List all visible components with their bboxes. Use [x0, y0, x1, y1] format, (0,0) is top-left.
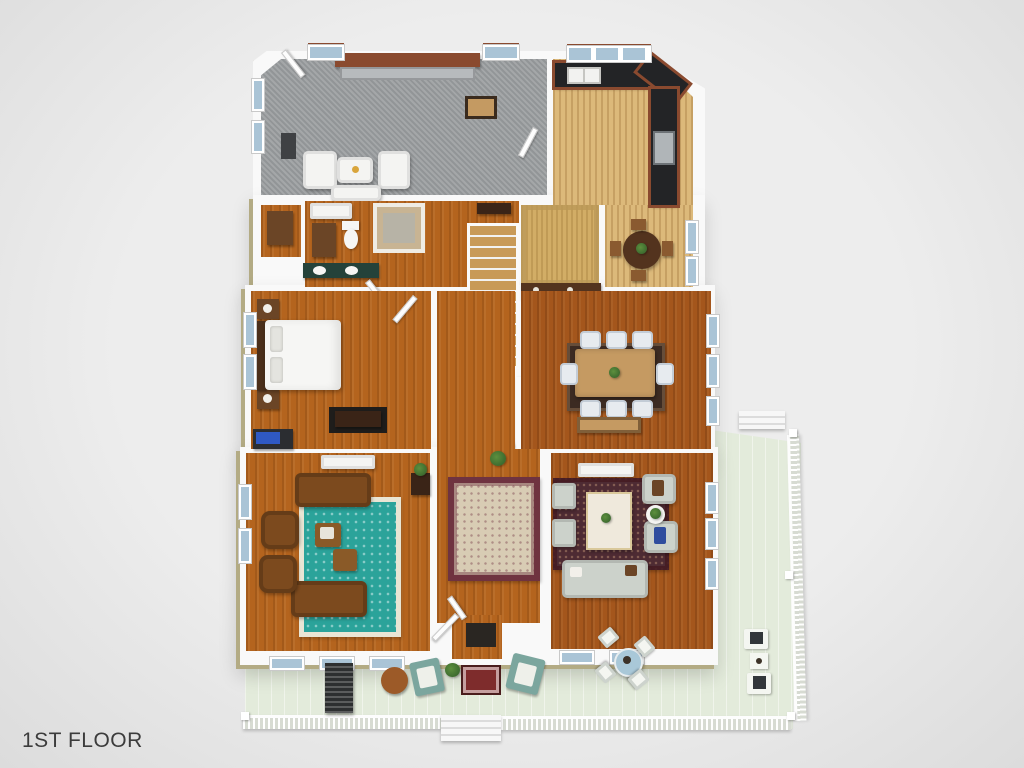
dining-chair [632, 400, 653, 418]
window [707, 397, 719, 425]
dining-chair [632, 331, 653, 349]
living-sideboard [411, 473, 430, 495]
deck-steps-top [739, 411, 785, 429]
window [308, 45, 344, 60]
floor-plan [215, 15, 815, 755]
dining-chair [606, 331, 627, 349]
porch-railing-left [243, 715, 441, 729]
porch-railing-right [501, 716, 791, 730]
sunroom-doormat [281, 133, 296, 159]
dining-chair [580, 400, 601, 418]
window [706, 559, 718, 589]
nook-chair [631, 219, 646, 230]
attic-hatch [465, 96, 497, 119]
window [707, 355, 719, 387]
dining-console [577, 417, 641, 433]
family-ottoman [552, 519, 576, 547]
floorplan-screenshot: { "title": { "floor_label": "1ST FLOOR" … [0, 0, 1024, 768]
window [686, 221, 698, 253]
living-armchair [261, 511, 299, 549]
entry-doormat [466, 623, 496, 647]
window [686, 257, 698, 285]
side-table-plant [650, 508, 661, 519]
living-console [321, 455, 375, 469]
window [239, 529, 251, 563]
porch-plant [445, 663, 460, 677]
nook-chair [631, 270, 646, 281]
bedroom-desk-top [256, 432, 280, 444]
nook-chair [610, 241, 621, 256]
shower-pan [383, 213, 415, 243]
family-ottoman [552, 483, 576, 509]
window [483, 45, 519, 60]
living-ottoman [333, 549, 357, 571]
floor-label: 1ST FLOOR [22, 729, 143, 753]
toilet-bowl [344, 229, 358, 249]
dining-chair [606, 400, 627, 418]
window [244, 313, 256, 347]
nightstand-lamp [263, 304, 272, 313]
window [567, 46, 651, 62]
sunroom-armchair [303, 151, 337, 189]
closet-cabinet [267, 211, 293, 245]
bedroom-media-console [335, 411, 381, 427]
coffee-table-plant [601, 513, 611, 523]
window [270, 657, 304, 670]
pantry-floor [521, 205, 599, 285]
railing-post [785, 571, 793, 579]
window [252, 121, 264, 153]
sunroom-loveseat [331, 185, 381, 201]
railing-post [787, 712, 795, 720]
bed-pillow [270, 357, 283, 383]
dining-chair [560, 363, 578, 385]
nightstand-lamp [263, 394, 272, 403]
dining-centerpiece [609, 367, 620, 378]
bed-pillow [270, 326, 283, 352]
dining-chair [656, 363, 674, 385]
bathroom-dresser [312, 223, 336, 257]
bathroom-vanity-top [310, 203, 352, 219]
porch-round-table [381, 667, 408, 694]
armchair-pillow [654, 527, 666, 544]
nook-chair [662, 241, 673, 256]
vanity-sink [313, 266, 326, 275]
sunroom-armchair [378, 151, 410, 189]
sofa-pillow [625, 565, 637, 576]
living-sofa [291, 581, 367, 617]
dining-chair [580, 331, 601, 349]
porch-steps [441, 715, 501, 741]
sunroom-table-decor [352, 166, 359, 173]
kitchen-sink-divider [583, 68, 585, 83]
hall-cabinet [477, 203, 511, 214]
deck-chair-cushion [753, 676, 766, 689]
living-sofa [295, 473, 371, 507]
sunroom-sideboard [335, 53, 480, 67]
window [560, 651, 594, 664]
living-sideboard-plant [414, 463, 427, 476]
hall-floor [437, 291, 515, 453]
window [707, 315, 719, 347]
armchair-pillow [652, 480, 664, 496]
railing-post [789, 429, 797, 437]
deck-chair-cushion [750, 632, 763, 644]
porch-glider-bench [325, 663, 353, 713]
nook-centerpiece [636, 243, 647, 254]
railing-post [241, 712, 249, 720]
foyer-plant [490, 451, 506, 466]
foyer-oriental-rug [448, 477, 540, 581]
family-console [578, 463, 634, 477]
window [706, 519, 718, 549]
kitchen-stove [653, 131, 675, 165]
window [706, 483, 718, 513]
ottoman-tray [320, 527, 334, 539]
deck-table-decor [756, 658, 762, 664]
welcome-mat [461, 665, 501, 695]
window [252, 79, 264, 111]
window [239, 485, 251, 519]
patio-table-decor [623, 656, 631, 664]
window [244, 355, 256, 389]
vanity-sink [345, 266, 358, 275]
living-armchair [259, 555, 297, 593]
sofa-pillow [570, 567, 582, 577]
sunroom-sideboard-front [340, 67, 475, 80]
